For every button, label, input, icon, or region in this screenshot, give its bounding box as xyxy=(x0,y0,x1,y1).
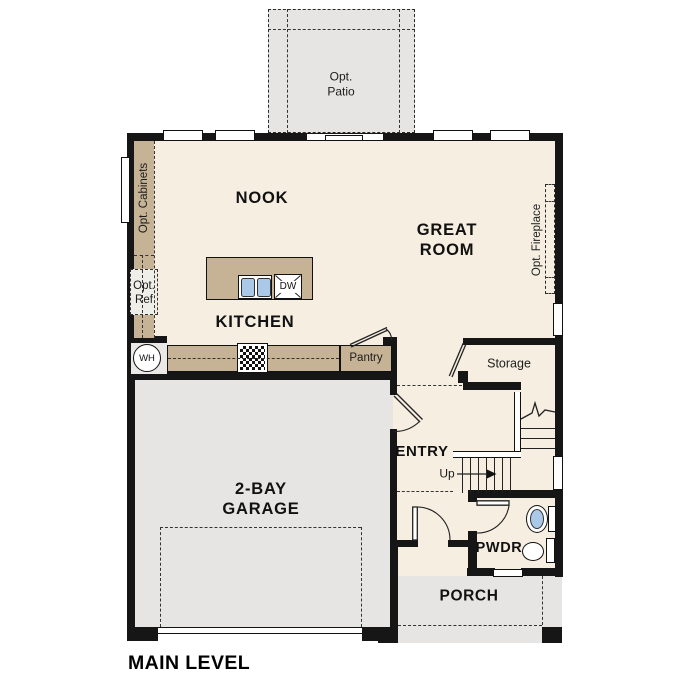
floor-plan: WH xyxy=(0,0,687,687)
room-label-pwdr: PWDR xyxy=(476,540,523,558)
pwdr-door-swing xyxy=(477,506,509,534)
room-label-pantry: Pantry xyxy=(349,351,382,365)
plan-title: MAIN LEVEL xyxy=(128,652,250,675)
room-label-entry: ENTRY xyxy=(395,443,448,461)
pantry-door-leaf xyxy=(350,328,388,348)
annotation-opt-ref: Opt. Ref xyxy=(133,279,155,307)
room-label-nook: NOOK xyxy=(236,188,289,208)
annotation-opt-fireplace: Opt. Fireplace xyxy=(531,204,543,276)
pwdr-door-leaf xyxy=(477,501,509,505)
annotation-opt-patio: Opt. Patio xyxy=(327,69,354,98)
dishwasher-label: DW xyxy=(279,281,298,293)
room-label-storage: Storage xyxy=(487,356,531,371)
room-label-garage: 2-BAY GARAGE xyxy=(222,479,299,519)
front-door-leaf xyxy=(413,507,418,540)
room-label-kitchen: KITCHEN xyxy=(216,312,295,332)
garage-entry-door-swing xyxy=(394,421,420,432)
annotation-opt-cabinets: Opt. Cabinets xyxy=(138,163,150,233)
storage-door-leaf xyxy=(449,343,466,377)
front-door-swing xyxy=(417,507,450,540)
stair-break-line xyxy=(521,403,555,419)
garage-entry-door-leaf xyxy=(394,394,423,423)
room-label-porch: PORCH xyxy=(440,588,499,607)
annotation-up: Up xyxy=(439,467,454,482)
doors-and-symbols-overlay xyxy=(0,0,687,687)
room-label-great-room: GREAT ROOM xyxy=(417,220,478,260)
up-arrow-head xyxy=(487,470,497,479)
